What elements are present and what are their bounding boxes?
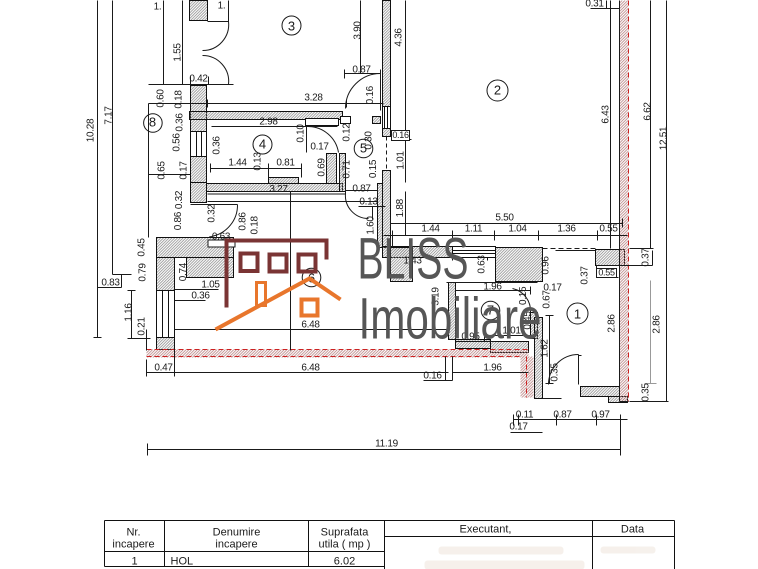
svg-text:6.43: 6.43 xyxy=(601,105,612,124)
svg-text:6.48: 6.48 xyxy=(301,363,320,374)
svg-text:0.36: 0.36 xyxy=(191,291,210,302)
svg-text:0.35: 0.35 xyxy=(550,363,561,382)
svg-text:2.86: 2.86 xyxy=(652,315,663,334)
svg-text:0.87: 0.87 xyxy=(553,410,572,421)
svg-text:utila ( mp ): utila ( mp ) xyxy=(319,539,371,551)
svg-text:6.62: 6.62 xyxy=(643,102,654,121)
svg-text:11.19: 11.19 xyxy=(375,439,399,450)
svg-text:2.98: 2.98 xyxy=(259,117,278,128)
svg-text:0.18: 0.18 xyxy=(249,216,260,235)
svg-text:1.04: 1.04 xyxy=(508,224,527,235)
svg-text:0.18: 0.18 xyxy=(174,90,185,109)
svg-text:Suprafata: Suprafata xyxy=(321,527,370,539)
svg-text:0.17: 0.17 xyxy=(179,161,190,180)
svg-text:4: 4 xyxy=(259,137,266,152)
svg-text:6.02: 6.02 xyxy=(334,556,355,568)
svg-text:0.55: 0.55 xyxy=(598,268,615,278)
svg-text:Imobiliare: Imobiliare xyxy=(359,287,542,352)
svg-text:3: 3 xyxy=(288,19,295,34)
svg-text:1.96: 1.96 xyxy=(483,363,502,374)
svg-text:5.50: 5.50 xyxy=(495,213,514,224)
svg-text:3.90: 3.90 xyxy=(353,21,364,40)
svg-text:8: 8 xyxy=(149,115,156,130)
svg-text:HOL: HOL xyxy=(171,556,194,568)
svg-text:0.60: 0.60 xyxy=(156,89,167,108)
svg-text:0.11: 0.11 xyxy=(516,410,534,421)
svg-text:0.86: 0.86 xyxy=(173,211,184,230)
svg-text:Nr.: Nr. xyxy=(126,527,140,539)
svg-text:0.16: 0.16 xyxy=(392,130,409,140)
svg-text:0.86: 0.86 xyxy=(238,212,249,231)
svg-text:0.69: 0.69 xyxy=(317,158,328,177)
svg-text:0.83: 0.83 xyxy=(101,278,120,289)
svg-text:0.12: 0.12 xyxy=(342,123,353,142)
svg-text:0.13: 0.13 xyxy=(359,197,378,208)
svg-text:0.97: 0.97 xyxy=(591,410,610,421)
svg-text:0.56: 0.56 xyxy=(172,133,183,152)
svg-text:Data: Data xyxy=(621,524,645,536)
svg-text:1: 1 xyxy=(574,307,581,322)
svg-text:10.28: 10.28 xyxy=(86,118,97,142)
svg-text:0.81: 0.81 xyxy=(276,158,295,169)
svg-text:7.17: 7.17 xyxy=(104,106,115,125)
svg-text:4.36: 4.36 xyxy=(394,28,405,47)
svg-text:0.15: 0.15 xyxy=(368,159,379,178)
svg-text:0.17: 0.17 xyxy=(310,142,329,153)
svg-text:1.: 1. xyxy=(218,1,226,12)
svg-text:0.16: 0.16 xyxy=(365,85,376,104)
svg-text:0.13: 0.13 xyxy=(253,152,264,171)
svg-text:0.36: 0.36 xyxy=(175,113,186,132)
svg-text:1.36: 1.36 xyxy=(557,224,576,235)
svg-text:12.51: 12.51 xyxy=(659,126,670,150)
svg-text:0.32: 0.32 xyxy=(207,204,218,223)
svg-text:0.17: 0.17 xyxy=(509,422,528,433)
svg-text:0.96: 0.96 xyxy=(541,256,552,275)
svg-text:0.47: 0.47 xyxy=(154,363,173,374)
svg-text:0.31: 0.31 xyxy=(585,0,604,10)
svg-text:2.86: 2.86 xyxy=(607,314,618,333)
svg-text:0.79: 0.79 xyxy=(138,263,149,282)
svg-text:0.30: 0.30 xyxy=(364,131,375,150)
svg-text:0.32: 0.32 xyxy=(174,190,185,209)
svg-text:0.67: 0.67 xyxy=(542,290,553,309)
svg-text:incapere: incapere xyxy=(112,539,154,551)
svg-text:0.35: 0.35 xyxy=(641,383,652,402)
svg-text:0.37: 0.37 xyxy=(580,266,591,285)
svg-text:0.87: 0.87 xyxy=(352,65,371,76)
svg-text:1.01: 1.01 xyxy=(396,151,407,170)
svg-text:0.63: 0.63 xyxy=(477,255,488,274)
svg-text:0.87: 0.87 xyxy=(352,184,371,195)
svg-text:0.21: 0.21 xyxy=(137,317,148,336)
svg-text:0.16: 0.16 xyxy=(423,371,442,382)
svg-text:1.05: 1.05 xyxy=(201,280,220,291)
svg-text:Denumire: Denumire xyxy=(213,527,261,539)
svg-text:0.71: 0.71 xyxy=(342,160,353,179)
svg-text:1.88: 1.88 xyxy=(395,198,406,217)
svg-text:0.10: 0.10 xyxy=(296,124,307,143)
svg-text:2: 2 xyxy=(494,83,501,98)
svg-text:1.16: 1.16 xyxy=(124,303,135,322)
svg-text:1.44: 1.44 xyxy=(228,158,247,169)
svg-text:0.55: 0.55 xyxy=(599,224,618,235)
svg-text:BLISS: BLISS xyxy=(358,227,469,292)
svg-text:0.42: 0.42 xyxy=(189,74,208,85)
svg-text:Executant,: Executant, xyxy=(460,524,512,536)
svg-text:3.28: 3.28 xyxy=(304,93,323,104)
svg-text:0.36: 0.36 xyxy=(212,136,223,155)
svg-text:incapere: incapere xyxy=(215,539,257,551)
svg-text:0.37: 0.37 xyxy=(641,248,652,267)
svg-text:0.45: 0.45 xyxy=(137,238,148,257)
svg-text:0.65: 0.65 xyxy=(157,161,168,180)
svg-text:1.55: 1.55 xyxy=(173,43,184,62)
svg-text:1: 1 xyxy=(131,556,137,568)
svg-text:0.74: 0.74 xyxy=(178,262,189,281)
svg-text:1.: 1. xyxy=(154,2,162,13)
svg-text:3.27: 3.27 xyxy=(269,184,288,195)
svg-text:6.48: 6.48 xyxy=(301,320,320,331)
